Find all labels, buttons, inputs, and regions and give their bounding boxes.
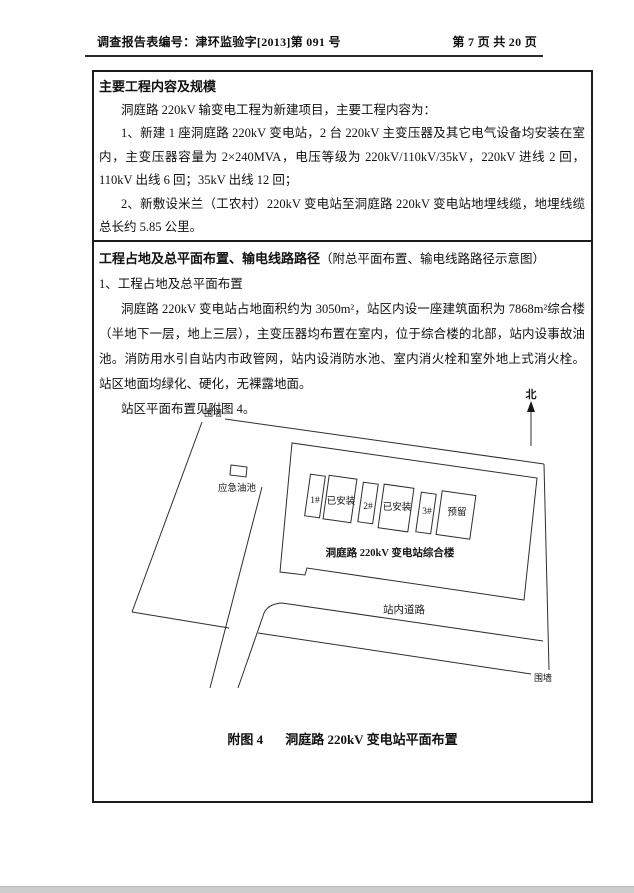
figure-caption-text: 洞庭路 220kV 变电站平面布置 — [285, 732, 457, 747]
transformer-3-no: 3# — [422, 507, 432, 517]
bottom-edge-bar — [0, 886, 634, 893]
site-plan-diagram: 北 围墙 围墙 应急油池 1# 已安装 2# 已安装 3# 预留 — [120, 385, 585, 697]
section2-title-note: （附总平面布置、输电线路路径示意图） — [320, 252, 545, 266]
oil-pool-rect — [230, 465, 247, 477]
section1-intro: 洞庭路 220kV 输变电工程为新建项目，主要工程内容为： — [99, 99, 585, 123]
transformer-3-status: 预留 — [447, 506, 466, 518]
transformer-2-no: 2# — [363, 502, 373, 512]
section1-item2: 2、新敷设米兰（工农村）220kV 变电站至洞庭路 220kV 变电站地埋线缆，… — [99, 193, 585, 240]
fence-label-top: 围墙 — [204, 407, 222, 418]
north-arrow-icon — [527, 401, 535, 446]
section2-title: 工程占地及总平面布置、输电线路路径（附总平面布置、输电线路路径示意图） — [99, 246, 585, 272]
document-page: 调查报告表编号：津环监验字[2013]第 091 号 第 7 页 共 20 页 … — [0, 0, 634, 893]
north-label: 北 — [526, 387, 537, 401]
section1-title: 主要工程内容及规模 — [99, 75, 585, 99]
building-label: 洞庭路 220kV 变电站综合楼 — [326, 546, 455, 559]
section2-title-bold: 工程占地及总平面布置、输电线路路径 — [99, 251, 320, 266]
figure-caption-no: 附图 4 — [227, 732, 263, 747]
transformer-1-no: 1# — [310, 496, 320, 506]
transformer-1-status: 已安装 — [327, 495, 356, 507]
transformer-2-status: 已安装 — [383, 501, 412, 513]
section2-para1: 洞庭路 220kV 变电站占地面积约为 3050m²，站区内设一座建筑面积为 7… — [99, 297, 585, 397]
fence-label-bottom: 围墙 — [534, 672, 552, 683]
page-number: 第 7 页 共 20 页 — [452, 33, 537, 50]
section2-subitem: 1、工程占地及总平面布置 — [99, 272, 585, 297]
report-number: 调查报告表编号：津环监验字[2013]第 091 号 — [97, 35, 341, 49]
access-road-west-line — [210, 487, 262, 688]
figure-caption: 附图 4洞庭路 220kV 变电站平面布置 — [92, 729, 593, 748]
road-label: 站内道路 — [383, 603, 425, 616]
fence-outline — [132, 419, 549, 674]
page-header: 调查报告表编号：津环监验字[2013]第 091 号 第 7 页 共 20 页 — [85, 33, 543, 57]
oil-pool-label: 应急油池 — [218, 482, 257, 494]
section1-item1: 1、新建 1 座洞庭路 220kV 变电站，2 台 220kV 主变压器及其它电… — [99, 122, 585, 193]
section-project-content: 主要工程内容及规模 洞庭路 220kV 输变电工程为新建项目，主要工程内容为： … — [94, 72, 591, 242]
